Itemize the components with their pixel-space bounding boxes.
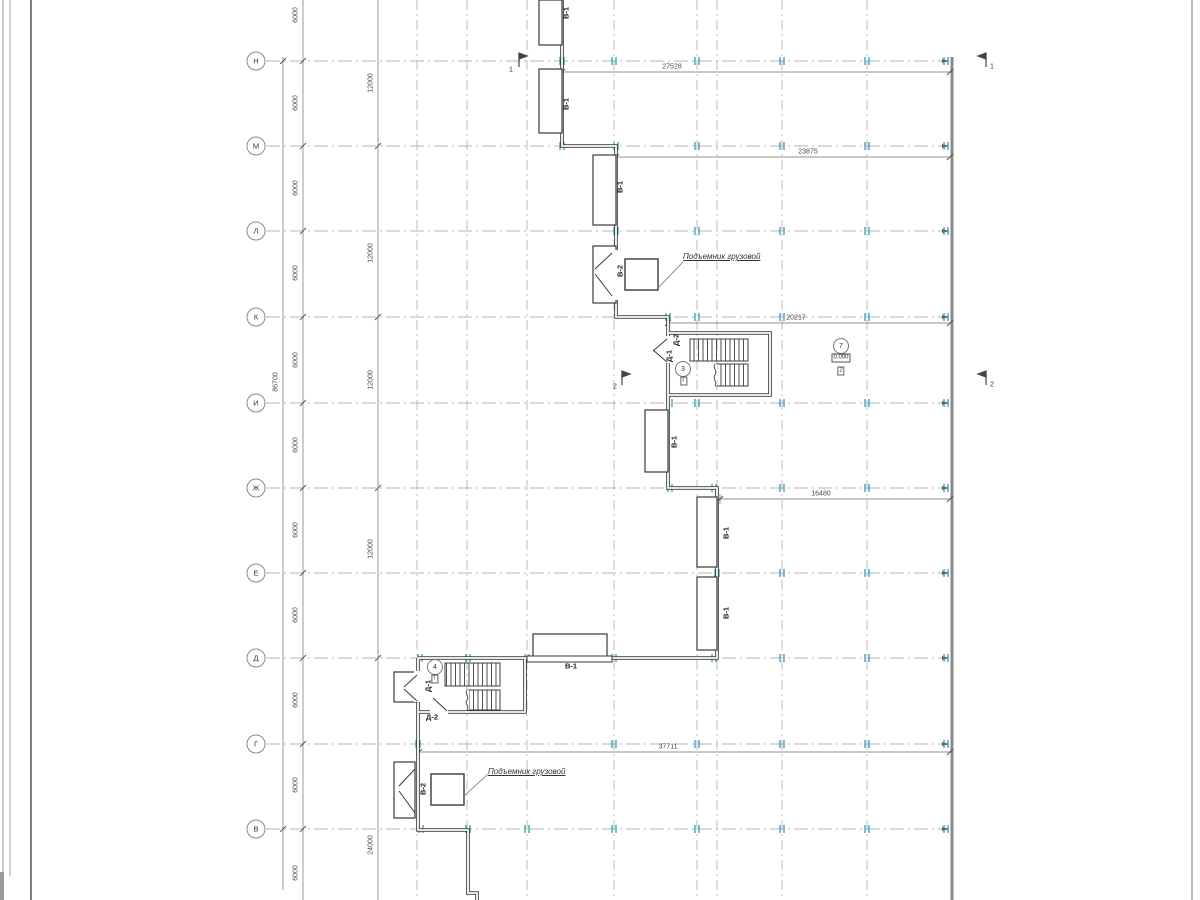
grid-row-marker: Д	[247, 649, 266, 668]
grid-lines	[266, 0, 952, 900]
dimension-label: 12000	[368, 73, 375, 92]
dimension-label: 16480	[811, 491, 830, 498]
grid-row-marker: В	[247, 820, 266, 839]
dimension-label: 27528	[662, 64, 681, 71]
window-type-label: Д-1	[665, 350, 673, 362]
grid-row-marker: М	[247, 137, 266, 156]
door-leaves	[399, 253, 667, 813]
grid-row-marker: Л	[247, 222, 266, 241]
grid-row-marker: Н	[247, 52, 266, 71]
dimension-label: 12000	[368, 243, 375, 262]
door-opening	[394, 762, 415, 818]
grid-row-marker: Г	[247, 735, 266, 754]
window-type-label: Д-2	[672, 334, 680, 346]
grid-row-marker: Ж	[247, 479, 266, 498]
room-symbol: 2	[837, 367, 844, 376]
dimension-label: 86700	[273, 372, 280, 391]
dimension-label: 23875	[798, 149, 817, 156]
dimension-label: 6000	[293, 777, 300, 793]
dimension-lines	[280, 0, 953, 900]
lift-annotation: Подъемник грузовой	[683, 253, 760, 261]
section-number: 1	[509, 67, 513, 74]
window-type-label: В-1	[670, 436, 678, 448]
room-symbol: Г	[680, 377, 687, 386]
window-type-label: В-1	[616, 181, 624, 193]
dimension-label: 6000	[293, 95, 300, 111]
window-type-label: В-2	[616, 265, 624, 277]
dimension-label: 6000	[293, 180, 300, 196]
window-b1	[539, 69, 562, 133]
dimension-label: 6000	[293, 692, 300, 708]
plan-linework	[0, 0, 1200, 900]
axis-ticks	[416, 57, 948, 833]
cargo-lift-shaft	[431, 774, 464, 805]
sheet-frame	[0, 0, 1192, 900]
elevation-label: 0.000	[831, 354, 850, 363]
window-type-label: В-1	[565, 662, 577, 670]
window-b1	[697, 577, 717, 650]
window-type-label: В-2	[419, 783, 427, 795]
window-b1	[539, 0, 562, 45]
leader-lines	[465, 262, 683, 795]
dimension-label: 24000	[368, 835, 375, 854]
dimension-label: 6000	[293, 865, 300, 881]
stair-number-badge: 4	[427, 659, 443, 675]
dimension-label: 6000	[293, 437, 300, 453]
window-type-label: Д-2	[426, 713, 438, 721]
stair-number-badge: 7	[833, 338, 849, 354]
lift-annotation: Подъемник грузовой	[488, 768, 565, 776]
section-number: 2	[613, 384, 617, 391]
window-type-label: В-1	[722, 527, 730, 539]
dimension-label: 6000	[293, 265, 300, 281]
window-type-label: В-1	[722, 607, 730, 619]
dimension-label: 6000	[293, 7, 300, 23]
door-opening	[593, 246, 616, 303]
grid-row-marker: И	[247, 394, 266, 413]
window-b1	[593, 155, 616, 225]
window-b1	[645, 410, 668, 472]
section-marks	[519, 53, 986, 385]
room-symbol: Г	[431, 675, 438, 684]
dimension-label: 20217	[786, 315, 805, 322]
dimension-label: 6000	[293, 607, 300, 623]
window-type-label: В-1	[562, 98, 570, 110]
stair-number-badge: 3	[675, 361, 691, 377]
dimension-label: 6000	[293, 522, 300, 538]
dimension-label: 6000	[293, 352, 300, 368]
grid-row-marker: К	[247, 308, 266, 327]
section-number: 2	[990, 382, 994, 389]
grid-row-marker: Е	[247, 564, 266, 583]
dimension-label: 37711	[659, 744, 678, 751]
vestibule	[533, 634, 607, 658]
window-b1	[697, 497, 717, 567]
dimension-label: 12000	[368, 370, 375, 389]
window-type-label: В-1	[562, 7, 570, 19]
floor-plan-drawing: НМЛКИЖЕДГВ275282387520217164803771160006…	[0, 0, 1200, 900]
section-number: 1	[990, 64, 994, 71]
dimension-label: 12000	[368, 539, 375, 558]
cargo-lift-shaft	[625, 259, 658, 290]
